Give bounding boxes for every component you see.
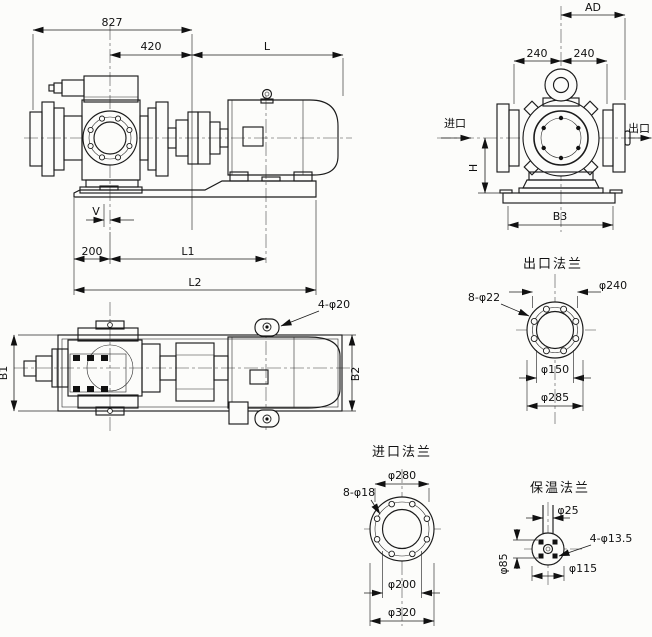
pump-plan-bolts (73, 355, 108, 392)
inlet-flange-detail: 进口法兰 φ280 8-φ18 φ200 φ320 (343, 445, 441, 626)
dim-420: 420 (141, 40, 162, 53)
dim-bore-150: φ150 (541, 363, 569, 376)
insulation-flange-title: 保温法兰 (530, 481, 590, 496)
plan-view: B1 B2 4-φ20 (0, 298, 362, 434)
label-inlet: 进口 (444, 117, 466, 130)
end-view: AD 240 240 进口 出口 H B3 (437, 1, 652, 232)
dim-bore-200: φ200 (388, 578, 416, 591)
label-4-holes-13-5: 4-φ13.5 (590, 532, 633, 545)
dim-200: 200 (82, 245, 103, 258)
dim-B2: B2 (349, 367, 362, 382)
label-8-holes-18: 8-φ18 (343, 486, 375, 499)
dim-AD: AD (585, 1, 601, 14)
dim-V: V (92, 205, 100, 218)
outlet-flange-title: 出口法兰 (523, 257, 583, 272)
inlet-flange-title: 进口法兰 (372, 445, 432, 460)
motor-terminal-box (243, 127, 263, 146)
outlet-flange-detail: 出口法兰 φ240 8-φ22 φ150 φ285 (468, 257, 627, 424)
dim-bolt-circle-280: φ280 (388, 469, 416, 482)
dim-H: H (467, 164, 480, 172)
insulation-flange-detail: 保温法兰 φ25 4-φ13.5 φ85 φ115 (497, 481, 632, 586)
motor-eyebolt (263, 90, 272, 99)
dim-od-285: φ285 (541, 391, 569, 404)
dim-od-320: φ320 (388, 606, 416, 619)
coupling-plan (160, 343, 228, 401)
engineering-drawing-canvas: 827 420 L V 200 L1 L2 (0, 0, 652, 637)
motor-conduit-box (229, 402, 248, 424)
pump-end-body (523, 100, 599, 176)
dim-240-right: 240 (574, 47, 595, 60)
plan-view-dimensions: B1 B2 4-φ20 (0, 298, 362, 411)
dim-B3: B3 (553, 210, 568, 223)
dim-bolt-span-85: φ85 (497, 553, 510, 574)
motor-side (228, 90, 338, 182)
baseplate-plan (58, 319, 342, 427)
pump-dimension-drawing: 827 420 L V 200 L1 L2 (0, 0, 652, 637)
dim-bolt-circle-240: φ240 (599, 279, 627, 292)
dim-B1: B1 (0, 366, 10, 381)
dim-827: 827 (102, 16, 123, 29)
side-view: 827 420 L V 200 L1 L2 (24, 16, 352, 295)
dim-L2: L2 (188, 276, 201, 289)
dim-pipe-25: φ25 (557, 504, 578, 517)
label-lug-holes: 4-φ20 (318, 298, 350, 311)
pump-side-outline (30, 76, 168, 193)
insulation-flange-dimensions: φ25 4-φ13.5 φ85 φ115 (497, 504, 632, 581)
dim-od-115: φ115 (569, 562, 597, 575)
top-boss (543, 69, 579, 106)
dim-L1: L1 (181, 245, 194, 258)
label-outlet: 出口 (628, 121, 650, 135)
label-8-holes-22: 8-φ22 (468, 291, 500, 304)
dim-240-left: 240 (527, 47, 548, 60)
dim-L: L (264, 40, 271, 53)
